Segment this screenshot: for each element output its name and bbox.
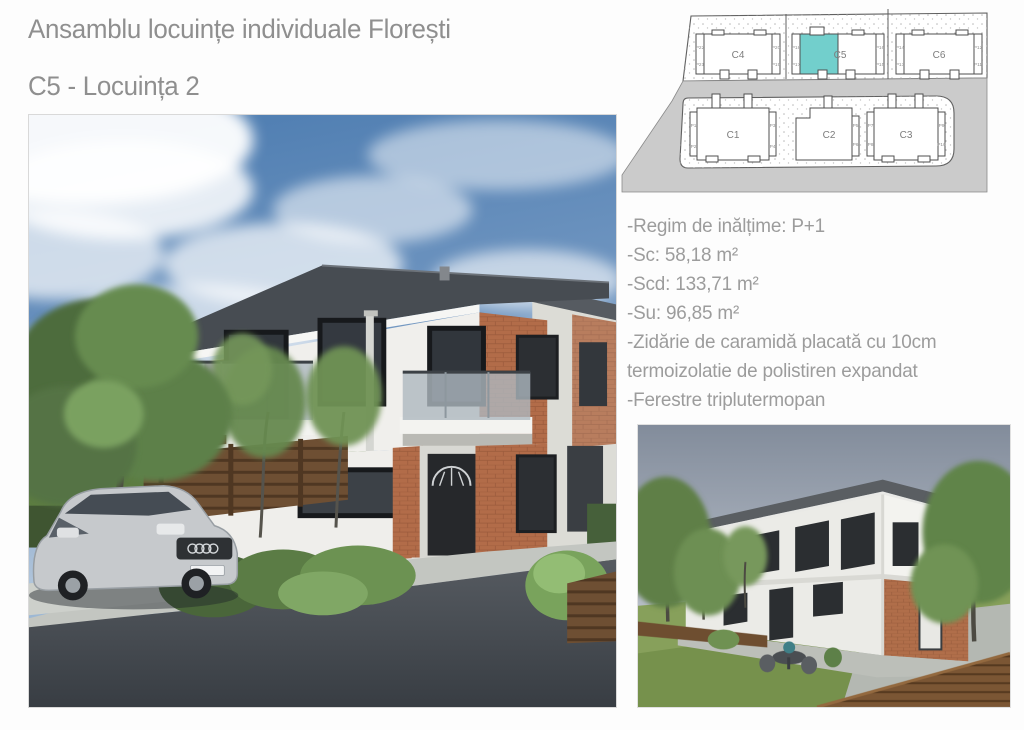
svg-text:P12: P12 (974, 45, 983, 51)
porch-brick-column (393, 446, 423, 560)
page-subtitle: C5 - Locuința 2 (28, 71, 575, 102)
main-render-scene (29, 115, 616, 707)
svg-text:P9: P9 (939, 123, 945, 129)
detail-line: -Su: 96,85 m² (627, 299, 1009, 328)
property-details: -Regim de inălțime: P+1 -Sc: 58,18 m² -S… (627, 212, 1021, 415)
unit-label-c3: C3 (900, 130, 913, 141)
svg-text:P14: P14 (896, 45, 905, 51)
svg-text:P8: P8 (868, 142, 874, 148)
svg-text:P7: P7 (868, 123, 874, 129)
svg-text:P1: P1 (691, 123, 697, 129)
svg-text:P16: P16 (876, 45, 885, 51)
detail-line: -Sc: 58,18 m² (627, 241, 1009, 270)
unit-label-c2: C2 (823, 130, 836, 141)
site-plan-drawing: C4 C5 C6 C1 C2 C3 P22 P21 P20 P19 P18 P1… (620, 4, 1020, 202)
garden-bush (708, 630, 740, 650)
svg-text:P18: P18 (792, 45, 801, 51)
detail-line: -Ferestre triplutermopan (627, 386, 1009, 415)
unit-label-c5: C5 (834, 50, 847, 61)
svg-text:P11: P11 (974, 62, 983, 68)
lower-brick-window (517, 456, 555, 532)
car-headlight (157, 524, 185, 535)
front-door (428, 454, 476, 556)
svg-text:P3: P3 (770, 123, 776, 129)
svg-text:P2: P2 (691, 144, 697, 150)
svg-text:P13: P13 (896, 62, 905, 68)
detail-line: -Regim de inălțime: P+1 (627, 212, 1009, 241)
svg-text:P22: P22 (696, 45, 705, 51)
svg-text:P19: P19 (772, 62, 781, 68)
svg-text:P10: P10 (937, 142, 946, 148)
svg-text:P15: P15 (876, 62, 885, 68)
highlighted-unit-c5 (800, 34, 838, 74)
detail-line: -Scd: 133,71 m² (627, 270, 1009, 299)
center-balcony (400, 372, 533, 446)
detail-line: -Zidărie de caramidă placată cu 10cm ter… (627, 328, 1009, 386)
svg-text:P6: P6 (853, 142, 859, 148)
rear-exterior-render (637, 424, 1011, 708)
svg-text:P21: P21 (696, 62, 705, 68)
svg-text:P17: P17 (792, 62, 801, 68)
right-fence (567, 571, 616, 643)
rear-render-scene (638, 425, 1010, 707)
unit-label-c6: C6 (933, 50, 946, 61)
svg-text:P20: P20 (772, 45, 781, 51)
unit-label-c4: C4 (732, 50, 745, 61)
svg-text:P5: P5 (853, 123, 859, 129)
page-title: Ansamblu locuințe individuale Florești (28, 14, 575, 45)
page-header: Ansamblu locuințe individuale Florești C… (28, 14, 598, 102)
site-plan: C4 C5 C6 C1 C2 C3 P22 P21 P20 P19 P18 P1… (620, 4, 1020, 202)
svg-text:P4: P4 (770, 144, 776, 150)
main-exterior-render (28, 114, 617, 708)
unit-label-c1: C1 (727, 130, 740, 141)
